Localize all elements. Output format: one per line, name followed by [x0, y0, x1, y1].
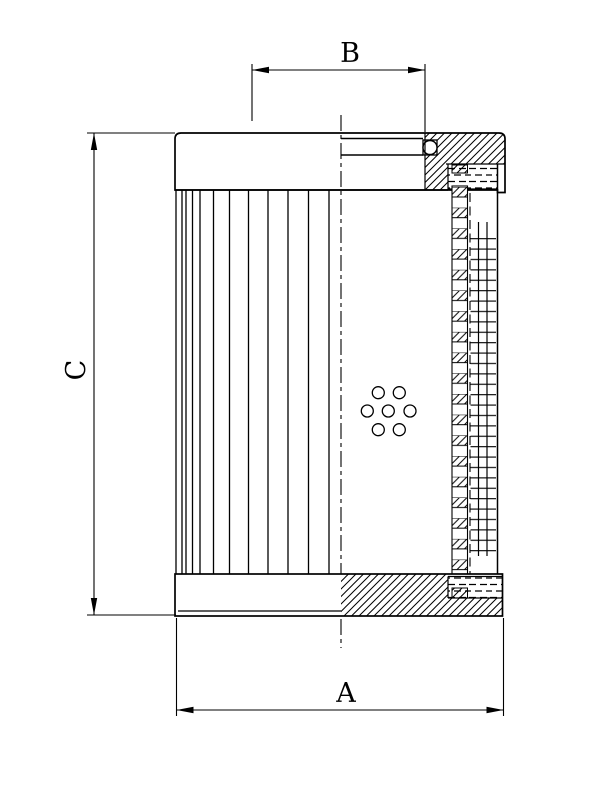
bottom-cap-hatch [341, 574, 448, 616]
filter-element-drawing: B C A [0, 0, 612, 792]
arrowhead-down [91, 598, 97, 615]
top-seal-core-square [452, 165, 468, 173]
support-mesh [471, 222, 497, 557]
arrowhead-up [91, 133, 97, 150]
dimension-b [252, 64, 425, 132]
arrowhead-right [408, 67, 425, 73]
dimension-label-c: C [61, 360, 92, 381]
bottom-end-cap [175, 574, 503, 616]
dimension-c [87, 133, 176, 615]
bottom-seal-core-square [452, 588, 468, 598]
top-cap-inner-ring-hatch [425, 164, 448, 190]
arrowhead-right [487, 707, 504, 713]
core-tube-section [452, 186, 468, 598]
dimension-label-b: B [340, 38, 360, 69]
top-end-cap [175, 133, 505, 193]
arrowhead-left [252, 67, 269, 73]
bottom-cap-hatch-strip [448, 598, 503, 616]
pleated-media [176, 190, 329, 574]
perforation-holes [361, 387, 416, 436]
element-body [176, 115, 498, 648]
drawing-page: B C A [0, 0, 612, 792]
arrowhead-left [177, 707, 194, 713]
dimension-label-a: A [335, 678, 356, 709]
